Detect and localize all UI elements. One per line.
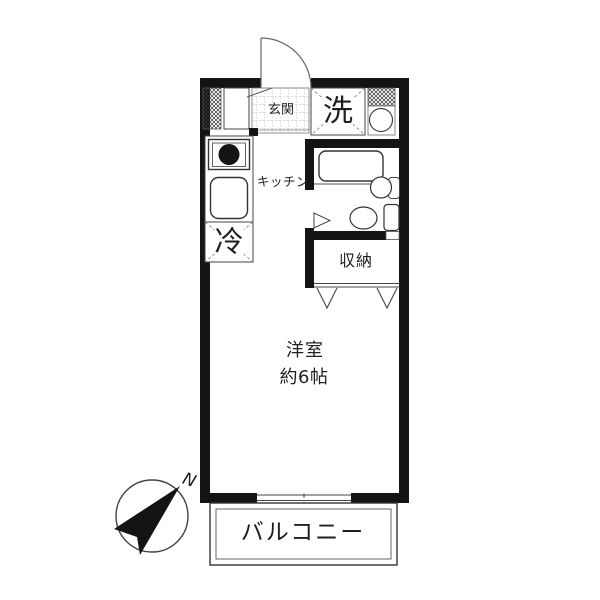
toilet-bowl — [350, 207, 377, 229]
washing-machine-label: 洗 — [323, 97, 353, 127]
entrance-door-arc — [261, 38, 311, 88]
kitchen-label: キッチン — [257, 176, 309, 189]
top-wall-left-segment — [200, 78, 261, 88]
compass — [114, 480, 188, 555]
toilet-tank — [384, 205, 399, 231]
storage-label: 収納 — [339, 253, 373, 269]
floorplan-canvas: 玄関 洗 キッチン 冷 収納 洋室 約6帖 バルコニー N — [0, 0, 600, 600]
bathroom-door-mark — [314, 213, 330, 228]
kitchen-sink — [211, 178, 248, 219]
bottom-wall-left-segment — [200, 493, 257, 503]
top-wall-right-segment — [311, 78, 409, 88]
wash-basin — [371, 177, 392, 198]
entrance-label: 玄関 — [267, 104, 295, 117]
floorplan-drawing — [0, 0, 600, 600]
bathtub — [319, 151, 383, 181]
room-name-label: 洋室 — [286, 342, 324, 360]
room-size-label: 約6帖 — [280, 369, 329, 387]
bathroom-top-wall — [305, 139, 400, 148]
water-heater-circle — [370, 109, 393, 132]
bottom-wall-right-segment — [351, 493, 409, 503]
closet-door-mark-right — [377, 288, 397, 308]
right-wall — [399, 78, 409, 503]
balcony-label: バルコニー — [241, 522, 366, 545]
shoe-cabinet — [224, 88, 249, 129]
corner-pillar-right — [368, 88, 395, 106]
refrigerator-label: 冷 — [214, 228, 243, 257]
entrance-door — [261, 38, 311, 88]
pipe-space-notch — [386, 232, 399, 240]
entrance-wall-stub — [249, 128, 258, 136]
sliding-window — [257, 493, 351, 503]
kitchen-counter — [205, 136, 253, 222]
closet-door-mark-left — [317, 288, 337, 308]
corner-pillar-left — [203, 88, 221, 129]
bathroom-fixtures — [314, 151, 400, 231]
closet — [314, 284, 400, 309]
stove-burner — [219, 144, 240, 165]
